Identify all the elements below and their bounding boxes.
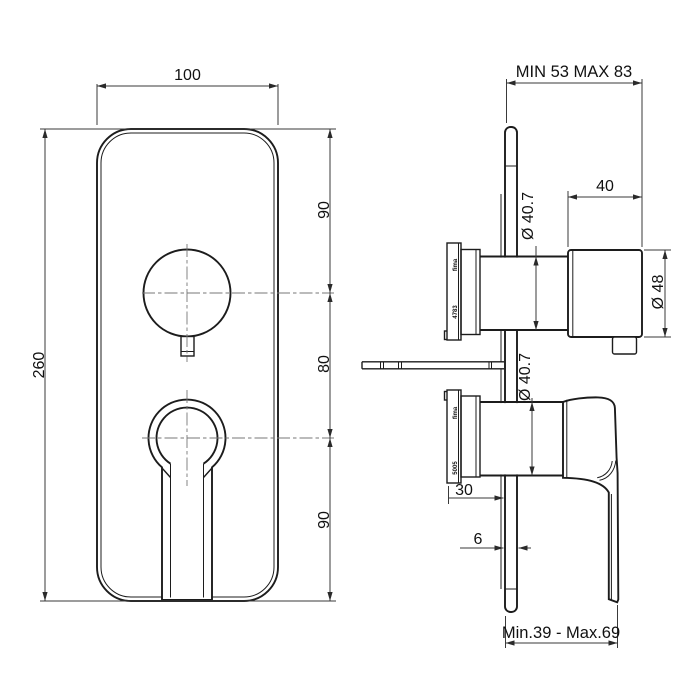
dim-front-height: 260 [31, 352, 48, 379]
side-diverter-knob [568, 250, 642, 337]
lower-cartridge-brand: fima [453, 406, 459, 419]
dim-lever-to-bottom: 90 [316, 511, 333, 529]
technical-drawing-page: 100 260 90 80 90 [0, 0, 700, 700]
dim-wall-depth-range: MIN 53 MAX 83 [516, 63, 632, 81]
side-view [362, 127, 642, 612]
side-upper-cartridge-body [461, 250, 480, 335]
upper-cartridge-brand: fima [453, 258, 459, 271]
dim-top-to-knob: 90 [316, 201, 333, 219]
upper-cartridge-code: 4783 [453, 305, 459, 319]
side-lever-handle [563, 397, 618, 602]
dim-knob-depth: 40 [596, 178, 614, 195]
dim-handle-projection-range: Min.39 - Max.69 [502, 624, 620, 642]
lower-cartridge-code: 5005 [453, 461, 459, 475]
front-view [97, 129, 278, 601]
side-view-dimensions: MIN 53 MAX 83 40 Ø 48 Ø 40.7 Ø 40.7 30 [449, 63, 672, 648]
dim-front-width: 100 [174, 67, 201, 84]
dim-knob-diameter: Ø 48 [650, 275, 667, 310]
side-wall-plate [505, 127, 517, 612]
front-knob-tab [181, 337, 194, 357]
dim-plate-thickness: 6 [474, 531, 483, 548]
dim-lower-body-diameter: Ø 40.7 [517, 353, 534, 401]
drawing-canvas: 100 260 90 80 90 [0, 0, 700, 700]
side-knob-tab [613, 337, 637, 354]
dim-cartridge-to-wall: 30 [455, 482, 473, 499]
dim-knob-to-lever: 80 [316, 355, 333, 373]
side-lower-cartridge-body [461, 396, 480, 477]
dim-upper-body-diameter: Ø 40.7 [520, 192, 537, 240]
